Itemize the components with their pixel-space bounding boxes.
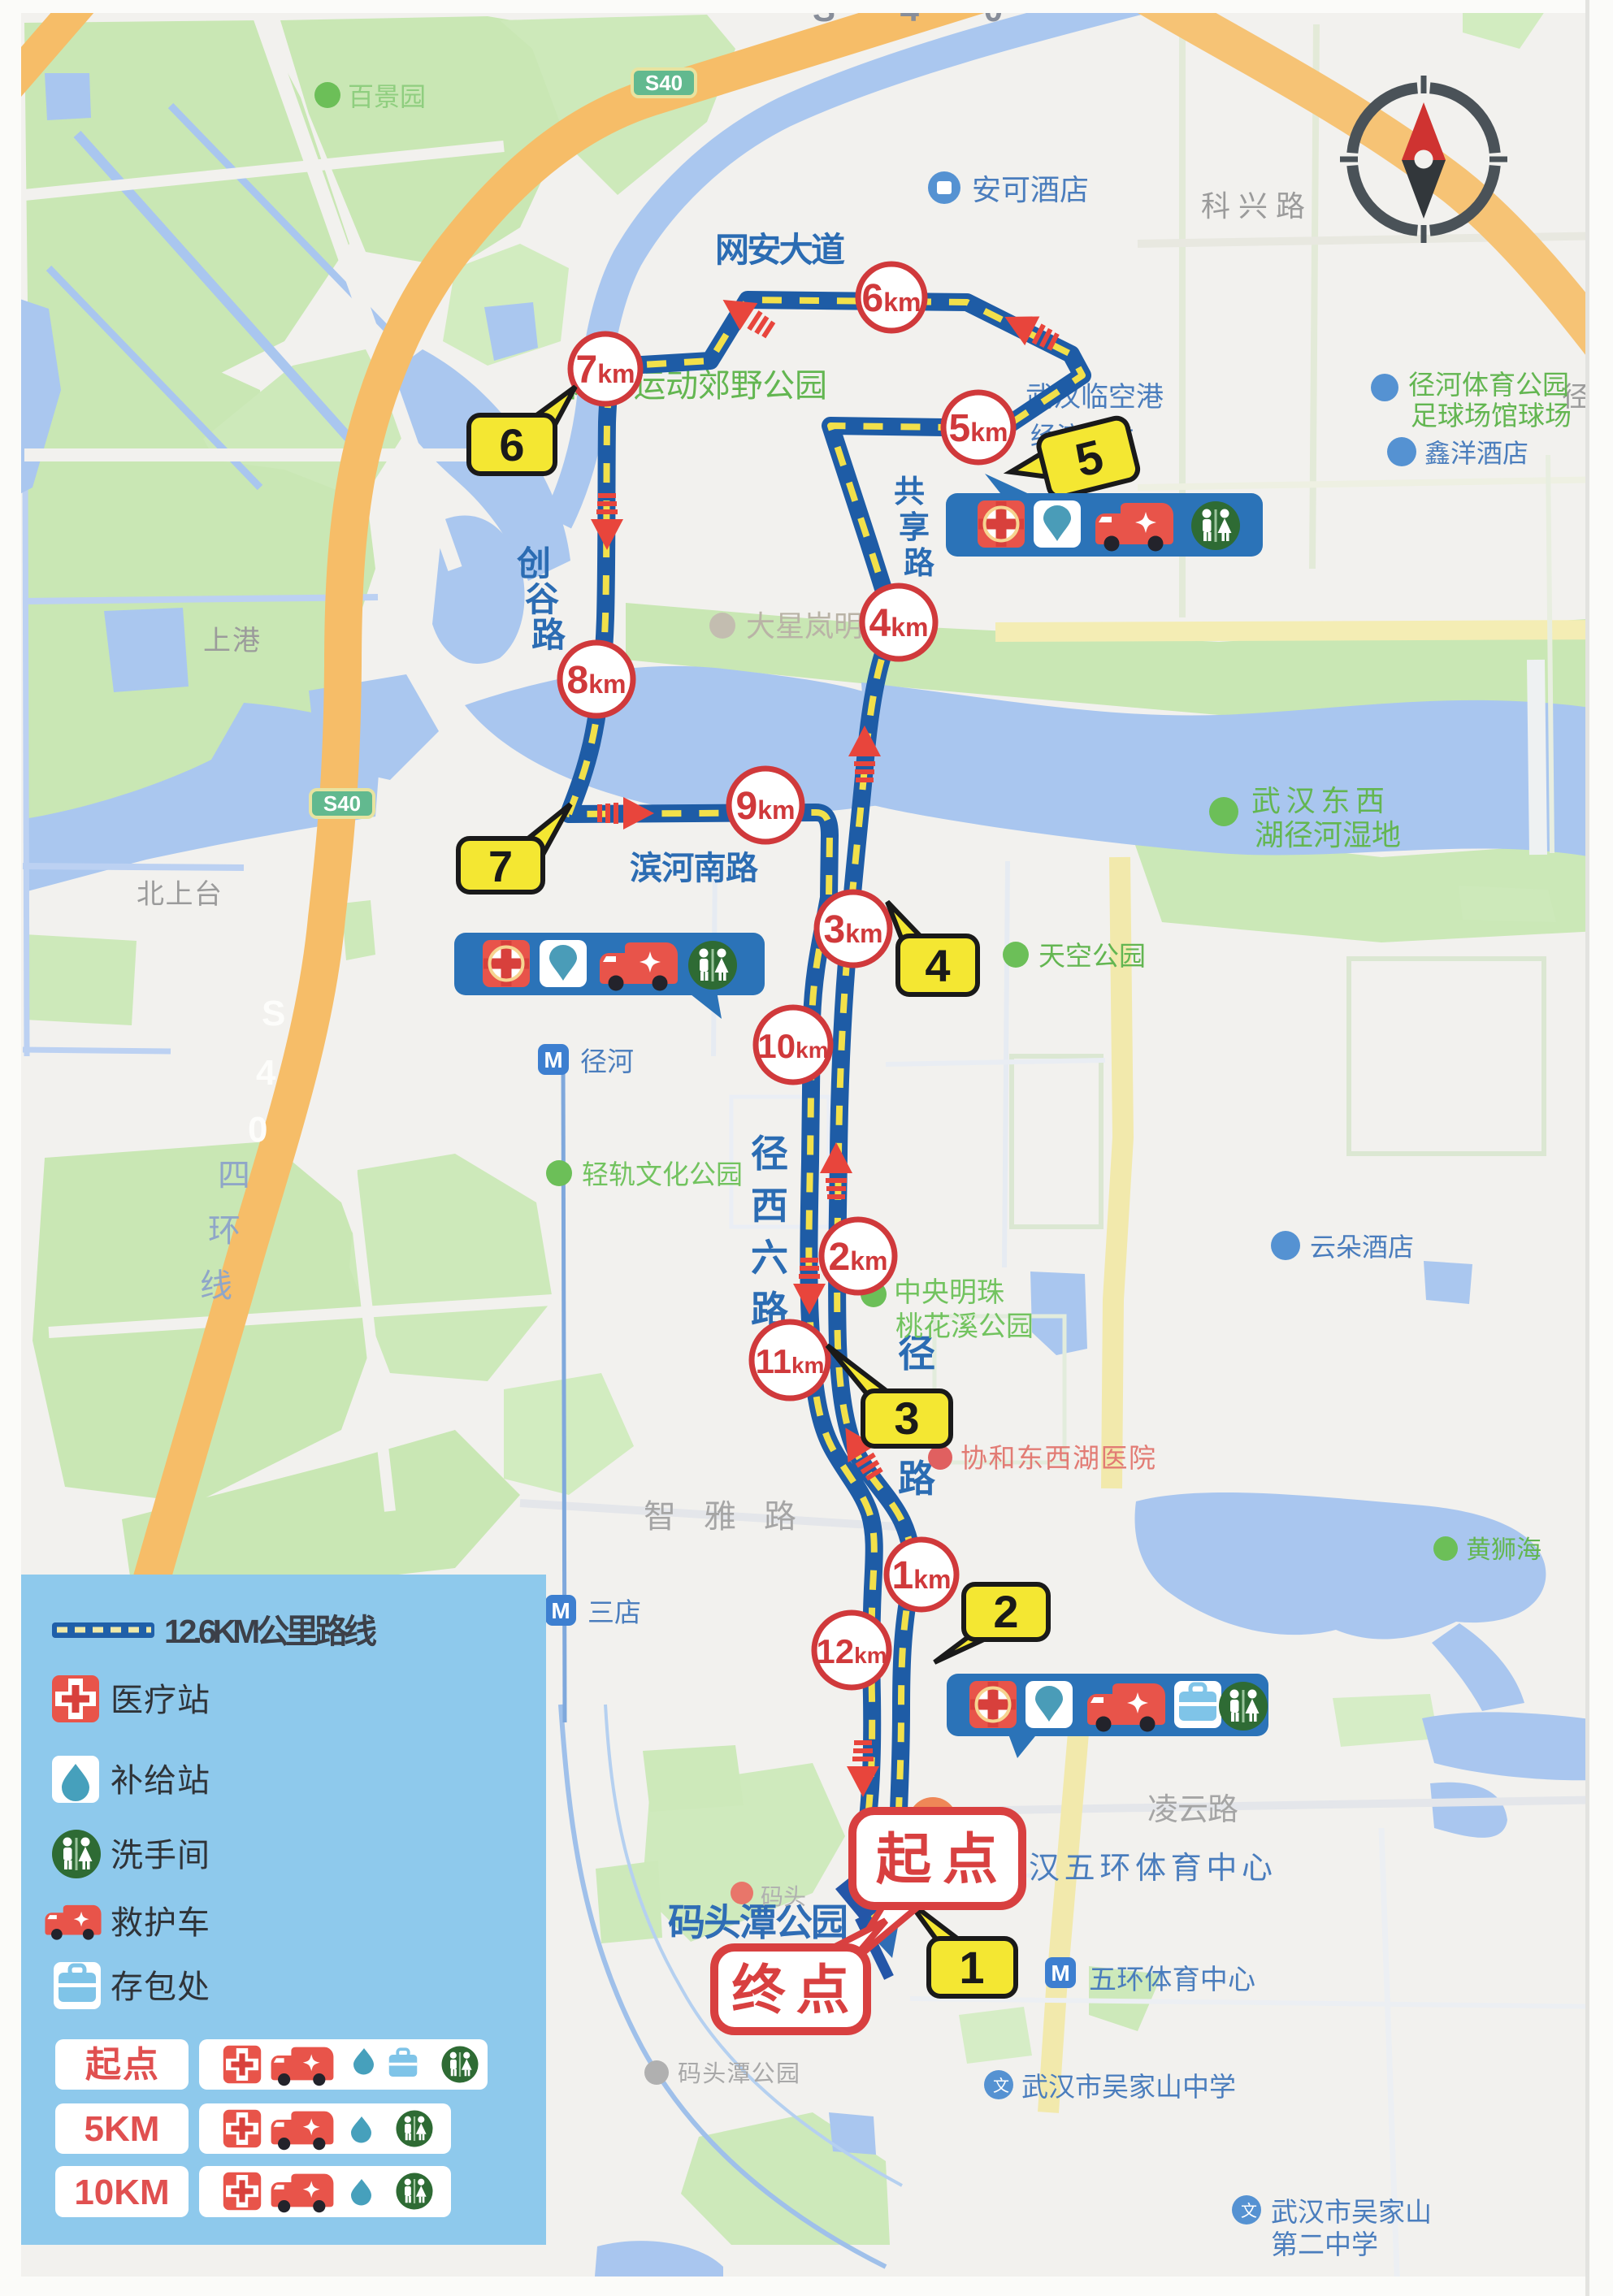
svg-text:码头潭公园: 码头潭公园 xyxy=(668,1901,848,1943)
svg-text:湖径河湿地: 湖径河湿地 xyxy=(1255,818,1401,851)
svg-text:创: 创 xyxy=(517,544,551,583)
svg-text:百景园: 百景园 xyxy=(348,82,426,111)
svg-text:第二中学: 第二中学 xyxy=(1271,2229,1378,2259)
svg-text:鑫洋酒店: 鑫洋酒店 xyxy=(1424,439,1528,468)
svg-text:0: 0 xyxy=(248,1110,267,1150)
svg-text:云朵酒店: 云朵酒店 xyxy=(1310,1232,1414,1262)
svg-text:医疗站: 医疗站 xyxy=(111,1683,210,1718)
svg-text:协和东西湖医院: 协和东西湖医院 xyxy=(960,1443,1156,1473)
svg-text:谷: 谷 xyxy=(525,580,559,618)
svg-text:S: S xyxy=(262,994,285,1033)
svg-text:网安大道: 网安大道 xyxy=(715,231,845,269)
svg-text:天空公园: 天空公园 xyxy=(1038,941,1146,971)
svg-text:智雅路: 智雅路 xyxy=(644,1499,847,1535)
svg-text:中央明珠: 中央明珠 xyxy=(894,1277,1004,1308)
svg-text:汉五环体育中心: 汉五环体育中心 xyxy=(1029,1852,1273,1886)
svg-text:文: 文 xyxy=(1241,2202,1257,2220)
svg-text:桃花溪公园: 桃花溪公园 xyxy=(895,1311,1034,1342)
svg-text:四: 四 xyxy=(218,1158,250,1193)
svg-text:补给站: 补给站 xyxy=(111,1763,210,1799)
svg-text:路: 路 xyxy=(531,616,566,654)
svg-text:洗手间: 洗手间 xyxy=(111,1838,210,1874)
svg-text:共: 共 xyxy=(894,475,925,509)
svg-text:3: 3 xyxy=(894,1393,919,1444)
svg-text:三店: 三店 xyxy=(588,1597,641,1627)
svg-text:4: 4 xyxy=(256,1053,276,1093)
svg-text:10KM: 10KM xyxy=(74,2173,169,2212)
svg-text:黄狮海: 黄狮海 xyxy=(1466,1536,1541,1564)
svg-text:足球场馆球场: 足球场馆球场 xyxy=(1411,401,1572,431)
svg-text:文: 文 xyxy=(993,2077,1009,2095)
svg-text:享: 享 xyxy=(899,511,930,545)
svg-text:6: 6 xyxy=(499,419,524,470)
svg-text:六: 六 xyxy=(751,1237,788,1279)
svg-text:线: 线 xyxy=(200,1268,232,1304)
svg-text:轻轨文化公园: 轻轨文化公园 xyxy=(582,1159,743,1189)
svg-text:1: 1 xyxy=(959,1942,984,1993)
svg-text:路: 路 xyxy=(904,547,935,581)
svg-text:救护车: 救护车 xyxy=(111,1905,210,1941)
svg-text:武汉市吴家山: 武汉市吴家山 xyxy=(1271,2197,1432,2227)
svg-text:科兴路: 科兴路 xyxy=(1201,189,1323,223)
svg-text:径: 径 xyxy=(751,1133,788,1175)
svg-text:环: 环 xyxy=(208,1213,241,1249)
svg-text:5KM: 5KM xyxy=(85,2109,160,2149)
svg-text:码头: 码头 xyxy=(761,1884,806,1909)
svg-text:北上台: 北上台 xyxy=(137,879,222,910)
svg-text:存包处: 存包处 xyxy=(111,1969,210,2005)
svg-text:2: 2 xyxy=(993,1586,1018,1637)
svg-text:凌云路: 凌云路 xyxy=(1147,1793,1261,1827)
svg-text:西: 西 xyxy=(751,1185,788,1227)
svg-text:大星岚明: 大星岚明 xyxy=(746,609,863,643)
svg-text:M: M xyxy=(1051,1960,1069,1986)
svg-text:武汉市吴家山中学: 武汉市吴家山中学 xyxy=(1021,2072,1236,2102)
svg-text:径河: 径河 xyxy=(580,1046,634,1077)
svg-text:安可酒店: 安可酒店 xyxy=(972,173,1089,206)
svg-text:12.6KM公里路线: 12.6KM公里路线 xyxy=(164,1613,377,1650)
svg-text:M: M xyxy=(544,1047,562,1072)
svg-text:五环体育中心: 五环体育中心 xyxy=(1089,1965,1255,1995)
svg-text:码头潭公园: 码头潭公园 xyxy=(678,2061,800,2087)
svg-text:滨河南路: 滨河南路 xyxy=(630,851,759,886)
svg-text:径河体育公园: 径河体育公园 xyxy=(1408,370,1569,400)
svg-text:M: M xyxy=(551,1598,570,1623)
svg-text:4: 4 xyxy=(925,940,950,991)
svg-text:7: 7 xyxy=(488,843,513,891)
svg-text:S40: S40 xyxy=(323,791,361,816)
svg-text:S40: S40 xyxy=(645,71,683,95)
